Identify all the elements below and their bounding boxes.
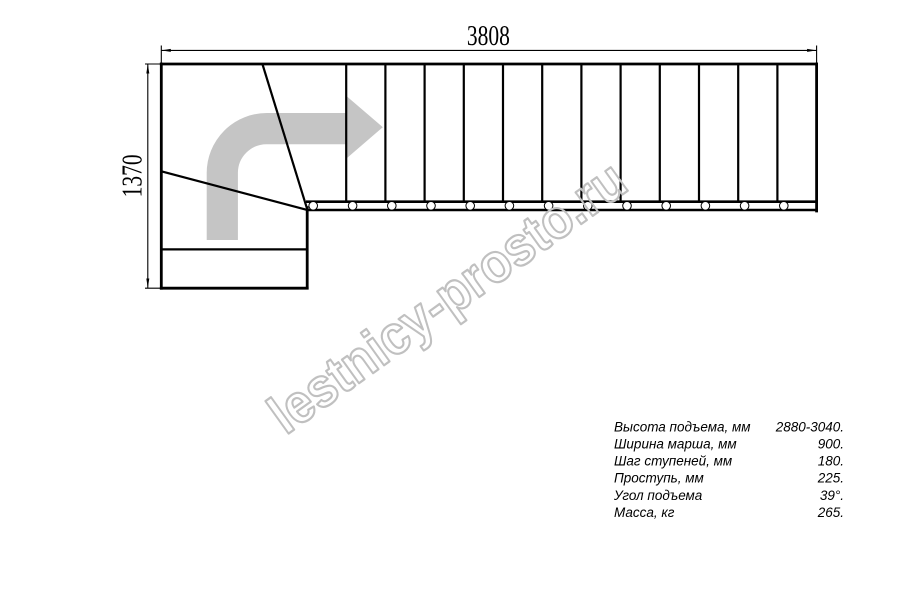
svg-text:1370: 1370 <box>118 154 149 197</box>
svg-text:Проступь, мм: Проступь, мм <box>614 471 704 486</box>
svg-text:Угол подъема: Угол подъема <box>613 488 703 503</box>
svg-text:Ширина марша, мм: Ширина марша, мм <box>614 437 737 452</box>
svg-text:39°.: 39°. <box>820 488 844 503</box>
svg-text:Шаг ступеней, мм: Шаг ступеней, мм <box>614 454 732 469</box>
svg-text:Высота подъема, мм: Высота подъема, мм <box>614 419 750 434</box>
svg-text:2880-3040.: 2880-3040. <box>775 419 844 434</box>
svg-text:3808: 3808 <box>467 21 510 52</box>
svg-text:Масса, кг: Масса, кг <box>614 505 675 520</box>
svg-text:225.: 225. <box>817 471 844 486</box>
svg-text:900.: 900. <box>818 437 844 452</box>
svg-text:180.: 180. <box>818 454 844 469</box>
svg-text:265.: 265. <box>817 505 844 520</box>
